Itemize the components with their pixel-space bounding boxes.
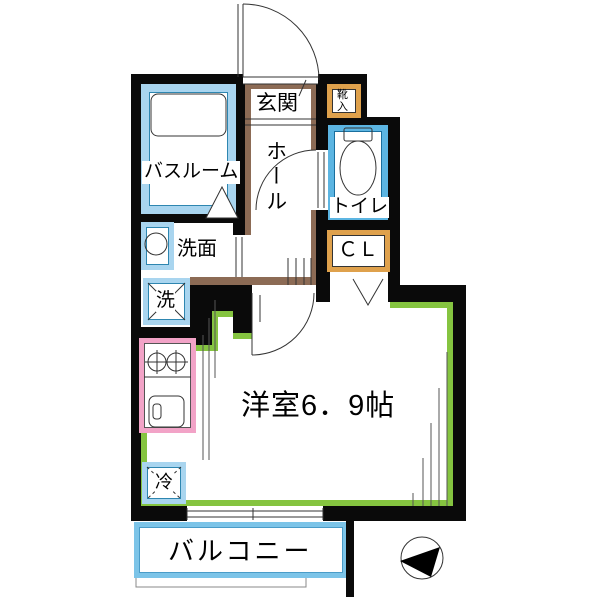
entrance-door-arc <box>238 4 319 96</box>
washroom-door-lines <box>236 237 242 277</box>
fridge-label: 冷 <box>155 473 173 492</box>
wall-right-main <box>453 302 466 521</box>
main-room-label: 洋室6．9帖 <box>241 391 395 422</box>
wall-right-upper <box>388 128 400 302</box>
wall-top-right <box>318 74 367 84</box>
wall-room-top-east <box>390 285 466 302</box>
washbasin-box <box>141 222 174 270</box>
genkan-label: 玄関 <box>256 93 298 116</box>
eave-line <box>136 578 306 587</box>
washbasin-label: 洗面 <box>177 239 217 261</box>
wall-step-mid <box>190 285 233 311</box>
floor-plan: 玄関 靴入 ホール トイレ バスルーム 洗面 洗 ＣＬ 洋室6．9帖 冷 バルコ… <box>0 0 600 600</box>
wall-bottom-left <box>131 506 187 521</box>
wall-top-left <box>131 74 243 84</box>
room-liner-step-e <box>233 333 252 339</box>
sliding-window <box>187 508 323 520</box>
closet-door-v <box>353 279 383 305</box>
balcony-label: バルコニー <box>168 537 312 565</box>
loft-ladder-lines <box>413 352 447 506</box>
wall-left <box>131 74 141 521</box>
hall-liner-west <box>245 84 251 235</box>
closet-label: ＣＬ <box>338 240 378 262</box>
wall-door-jamb <box>233 285 252 333</box>
hall-liner-bottom <box>190 277 322 285</box>
symbol-layer <box>0 0 600 600</box>
shoe-box-label: 靴入 <box>337 89 350 113</box>
wall-stub-below <box>346 521 354 597</box>
room-liner-top-east <box>390 302 453 308</box>
room-liner-step-b <box>212 311 218 351</box>
bathroom-area <box>141 84 236 214</box>
wall-bottom-right <box>353 506 466 521</box>
kitchen-unit <box>139 338 196 433</box>
toilet-label: トイレ <box>330 197 389 218</box>
hall-label: ホール <box>263 140 286 215</box>
compass-north-arrow <box>400 537 443 579</box>
wall-bottom-mid <box>323 506 360 521</box>
genkan-liner-top <box>243 84 318 89</box>
bathroom-label: バスルーム <box>142 161 240 184</box>
wall-step-mid2 <box>190 311 212 327</box>
washer-label: 洗 <box>156 291 175 312</box>
wall-shoebox-right <box>361 74 367 120</box>
genkan-step-lines <box>245 119 316 125</box>
room-door-arc <box>252 258 314 355</box>
